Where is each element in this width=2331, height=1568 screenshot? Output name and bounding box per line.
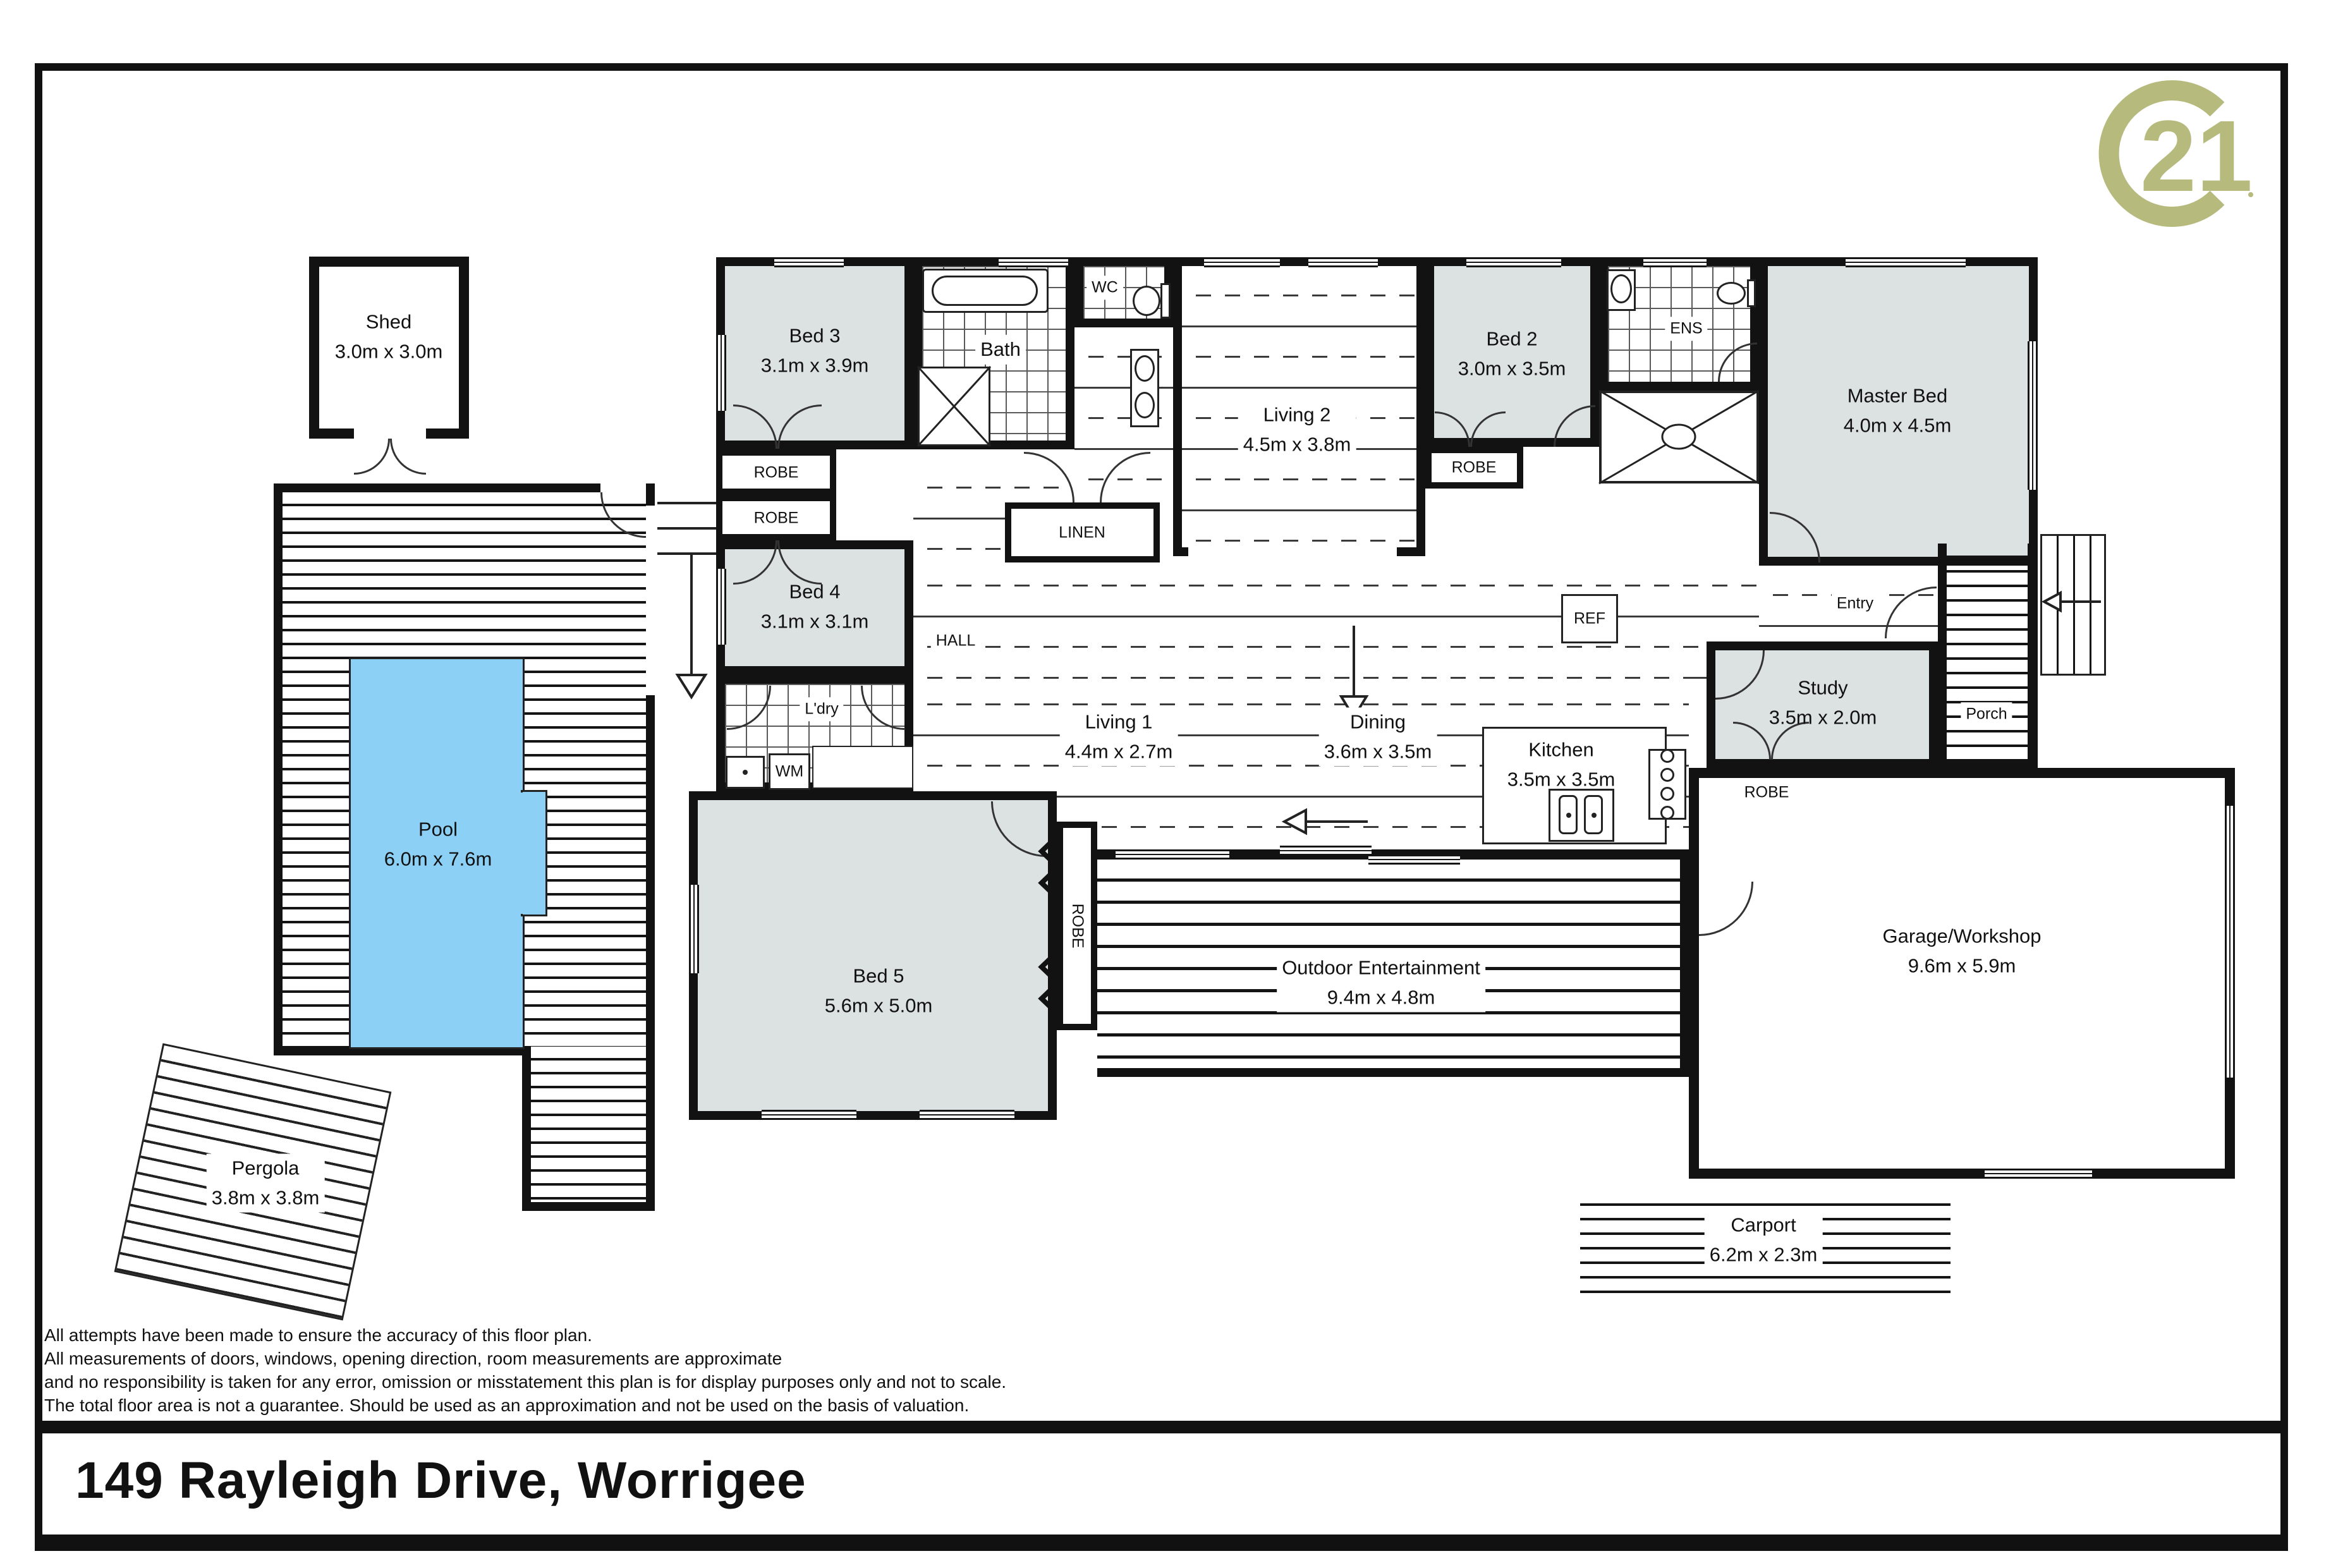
toilet-icon xyxy=(1747,279,1756,307)
window xyxy=(2225,806,2235,1078)
ens-label: ENS xyxy=(1665,317,1707,341)
robe-rail-icon xyxy=(1040,951,1058,1014)
pool-deck-extension xyxy=(531,1047,646,1202)
window xyxy=(1308,257,1378,267)
window xyxy=(762,1110,856,1120)
window xyxy=(774,257,844,267)
room-label-outdoor: Outdoor Entertainment9.4m x 4.8m xyxy=(1277,954,1485,1012)
cooktop-icon xyxy=(1648,749,1686,820)
window xyxy=(1846,257,1966,267)
room-label-carport: Carport6.2m x 2.3m xyxy=(1705,1211,1823,1270)
room-label-pergola: Pergola3.8m x 3.8m xyxy=(207,1154,325,1213)
entry-label: Entry xyxy=(1832,592,1878,616)
toilet-icon xyxy=(1160,283,1171,319)
porch xyxy=(1938,544,2038,768)
century21-logo-icon: 21 xyxy=(2097,49,2255,258)
window xyxy=(1204,257,1280,267)
robe-label: ROBE xyxy=(1452,456,1497,480)
window xyxy=(689,885,699,973)
hall-label: HALL xyxy=(931,629,981,653)
bed5-room xyxy=(689,791,1057,1120)
window xyxy=(1643,257,1707,267)
window xyxy=(1116,849,1229,860)
room-label-living2: Living 24.5m x 3.8m xyxy=(1238,401,1356,459)
room-label-living1: Living 14.4m x 2.7m xyxy=(1060,708,1178,767)
window xyxy=(920,1110,1014,1120)
porch-label: Porch xyxy=(1961,702,2012,726)
ldry-label: L'dry xyxy=(800,697,843,721)
window xyxy=(999,257,1068,267)
steps-direction-arrow-icon xyxy=(2043,588,2103,616)
logo-number: 21 xyxy=(2140,99,2253,212)
room-label-dining: Dining3.6m x 3.5m xyxy=(1319,708,1437,767)
robe-label: ROBE xyxy=(749,461,804,485)
window xyxy=(716,569,726,645)
title-band: 149 Rayleigh Drive, Worrigee xyxy=(35,1428,2288,1551)
disclaimer-text: All attempts have been made to ensure th… xyxy=(44,1323,1006,1417)
sliding-door xyxy=(1280,846,1372,856)
room-label-bed4: Bed 43.1m x 3.1m xyxy=(761,578,869,636)
bath-label: Bath xyxy=(975,335,1026,365)
window xyxy=(1466,257,1561,267)
room-label-garage: Garage/Workshop9.6m x 5.9m xyxy=(1883,922,2042,981)
door-direction-arrow-icon xyxy=(1283,804,1372,839)
laundry-bench xyxy=(812,746,913,789)
garage-rear-door xyxy=(1985,1169,2092,1179)
sliding-door xyxy=(1368,854,1460,865)
room-label-study: Study3.5m x 2.0m xyxy=(1769,674,1877,732)
robe-label: ROBE xyxy=(1065,904,1089,949)
robe-label: ROBE xyxy=(1744,781,1789,805)
room-label-bed3: Bed 33.1m x 3.9m xyxy=(761,322,869,380)
floorplan-page: 149 Rayleigh Drive, Worrigee All attempt… xyxy=(0,0,2331,1568)
ref-label: REF xyxy=(1574,607,1605,631)
room-label-bed5: Bed 55.6m x 5.0m xyxy=(825,962,933,1021)
room-label-shed: Shed3.0m x 3.0m xyxy=(335,308,443,367)
wm-label: WM xyxy=(776,760,803,784)
hall-direction-arrow-icon xyxy=(1335,626,1373,720)
window xyxy=(716,335,726,411)
robe-rail-icon xyxy=(1040,836,1058,899)
linen-label: LINEN xyxy=(1059,521,1105,545)
wc-label: WC xyxy=(1086,276,1123,300)
room-label-kitchen: Kitchen3.5m x 3.5m xyxy=(1507,736,1616,794)
robe-label: ROBE xyxy=(749,506,804,530)
room-label-bed2: Bed 23.0m x 3.5m xyxy=(1458,325,1566,384)
room-label-master: Master Bed4.0m x 4.5m xyxy=(1844,382,1952,441)
room-label-pool: Pool6.0m x 7.6m xyxy=(384,815,492,874)
window xyxy=(2028,341,2038,490)
page-title: 149 Rayleigh Drive, Worrigee xyxy=(75,1451,806,1510)
